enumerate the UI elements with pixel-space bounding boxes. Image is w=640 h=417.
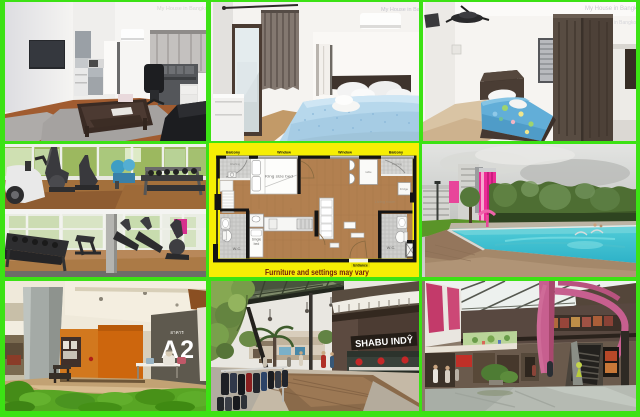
svg-text:My House in Bangkok: My House in Bangkok: [585, 6, 636, 12]
svg-text:Living room: Living room: [375, 199, 396, 204]
svg-text:table: table: [365, 170, 372, 174]
svg-text:Fridge: Fridge: [400, 187, 409, 191]
svg-text:King size bed: King size bed: [265, 174, 293, 179]
svg-text:Window: Window: [277, 151, 291, 155]
svg-text:Washing: Washing: [392, 162, 403, 166]
svg-text:bed: bed: [254, 242, 260, 246]
svg-text:อาคาร: อาคาร: [170, 330, 184, 335]
svg-text:My House in Bangkok: My House in Bangkok: [381, 7, 419, 13]
svg-text:W.C.: W.C.: [387, 245, 396, 250]
svg-text:Balcony: Balcony: [226, 151, 240, 155]
svg-text:Furniture and settings may var: Furniture and settings may vary: [265, 267, 369, 277]
svg-text:W.C.: W.C.: [233, 246, 242, 251]
svg-text:My House in Bangkok: My House in Bangkok: [157, 6, 206, 12]
svg-text:Single: Single: [252, 238, 262, 242]
svg-text:Balcony: Balcony: [389, 151, 403, 155]
svg-text:Washing: Washing: [230, 162, 241, 166]
svg-text:Window: Window: [338, 151, 352, 155]
